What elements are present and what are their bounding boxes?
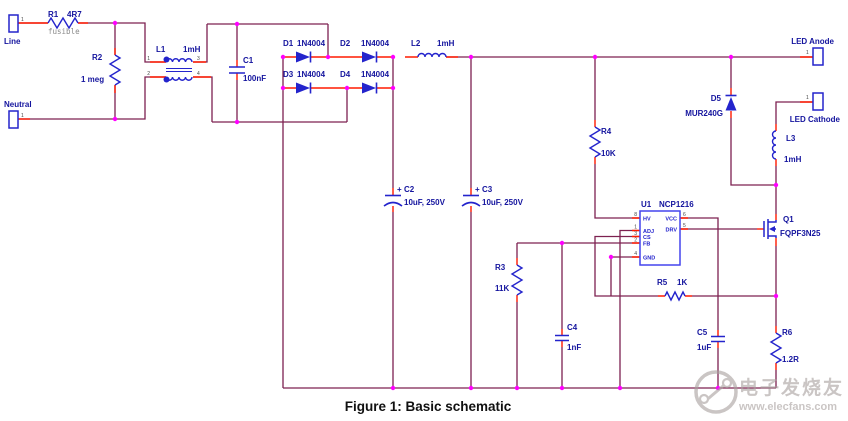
resistor-r2 [110, 55, 120, 85]
r1-ref: R1 [48, 10, 59, 19]
r4-ref: R4 [601, 127, 612, 136]
neutral-connector-box [9, 111, 18, 128]
phase-dot [164, 57, 170, 63]
resistor-r5 [665, 292, 685, 300]
r4-value: 10K [601, 149, 616, 158]
resistor-r3 [512, 265, 522, 295]
c2-polarity: + [397, 185, 402, 194]
l1-pin4-number: 4 [197, 71, 200, 77]
inductor-l3 [773, 131, 777, 159]
inductor-l1-transformer [164, 57, 193, 83]
u1-value: NCP1216 [659, 200, 694, 209]
capacitor-c4 [555, 336, 569, 341]
c3-ref: C3 [482, 185, 493, 194]
watermark-url: www.elecfans.com [738, 401, 837, 413]
l2-value: 1mH [437, 39, 455, 48]
r3-value: 11K [495, 284, 509, 293]
u1-pin-adj-number: 1 [634, 225, 637, 231]
u1-pin-drv-number: 5 [683, 223, 686, 229]
c1-ref: C1 [243, 56, 254, 65]
u1-pin-cs-number: 3 [634, 231, 637, 237]
d4-value: 1N4004 [361, 70, 390, 79]
led-cathode-label: LED Cathode [790, 115, 841, 124]
led-anode-connector-box [813, 48, 823, 65]
u1-pin-hv-number: 8 [634, 212, 637, 218]
led-cathode-pin-number: 1 [806, 95, 809, 101]
r1-value: 4R7 [67, 10, 82, 19]
resistor-r4 [590, 127, 600, 157]
q1-value: FQPF3N25 [780, 229, 821, 238]
c4-value: 1nF [567, 343, 581, 352]
c1-value: 100nF [243, 74, 266, 83]
u1-pin-cs: CS [643, 235, 651, 241]
inductor-l2 [418, 54, 446, 57]
r2-value: 1 meg [81, 75, 104, 84]
line-label: Line [4, 37, 21, 46]
r3-ref: R3 [495, 263, 506, 272]
q1-ref: Q1 [783, 215, 794, 224]
diode-d1 [296, 52, 311, 63]
c5-value: 1uF [697, 343, 711, 352]
d3-value: 1N4004 [297, 70, 326, 79]
u1-pin-gnd: GND [643, 256, 655, 262]
r6-value: 1.2R [782, 355, 799, 364]
l2-ref: L2 [411, 39, 421, 48]
watermark-text: 电子发烧友 [739, 376, 844, 399]
neutral-label: Neutral [4, 100, 32, 109]
l1-value: 1mH [183, 45, 201, 54]
c2-ref: C2 [404, 185, 415, 194]
c3-polarity: + [475, 185, 480, 194]
neutral-pin-number: 1 [21, 113, 24, 119]
r1-note: fusible [48, 27, 80, 36]
c4-ref: C4 [567, 323, 578, 332]
l3-ref: L3 [786, 134, 796, 143]
u1-pin-hv: HV [643, 217, 651, 223]
u1-ref: U1 [641, 200, 652, 209]
resistor-r6 [771, 333, 781, 363]
u1-pin-vcc: VCC [665, 217, 677, 223]
r6-ref: R6 [782, 328, 793, 337]
c5-ref: C5 [697, 328, 708, 337]
l3-value: 1mH [784, 155, 802, 164]
component-leads [18, 23, 813, 370]
mosfet-q1 [764, 219, 776, 239]
diode-d5 [726, 96, 737, 111]
capacitor-c3 [462, 196, 480, 207]
led-cathode-connector-box [813, 93, 823, 110]
l1-ref: L1 [156, 45, 166, 54]
capacitor-c5 [711, 337, 725, 342]
capacitor-c1 [229, 67, 245, 73]
diode-d3 [296, 83, 311, 94]
u1-pin-fb: FB [643, 242, 650, 248]
d5-ref: D5 [711, 94, 722, 103]
d2-ref: D2 [340, 39, 351, 48]
line-pin-number: 1 [21, 17, 24, 23]
schematic-drawing: R1 4R7 fusible Line Neutral R2 1 meg L1 … [0, 0, 848, 421]
d4-ref: D4 [340, 70, 351, 79]
d5-value: MUR240G [685, 109, 723, 118]
u1-pin-fb-number: 2 [634, 238, 637, 244]
l1-pin3-number: 3 [197, 56, 200, 62]
l1-pin2-number: 2 [147, 71, 150, 77]
r5-value: 1K [677, 278, 687, 287]
u1-pin-drv: DRV [665, 228, 677, 234]
diode-d4 [362, 83, 377, 94]
led-anode-pin-number: 1 [806, 50, 809, 56]
figure-caption: Figure 1: Basic schematic [345, 399, 512, 414]
d3-ref: D3 [283, 70, 294, 79]
r2-ref: R2 [92, 53, 103, 62]
u1-pin-vcc-number: 6 [683, 212, 686, 218]
l1-pin1-number: 1 [147, 56, 150, 62]
schematic-canvas: R1 4R7 fusible Line Neutral R2 1 meg L1 … [0, 0, 848, 421]
d1-ref: D1 [283, 39, 294, 48]
phase-dot [164, 77, 170, 83]
d1-value: 1N4004 [297, 39, 326, 48]
c3-value: 10uF, 250V [482, 198, 524, 207]
r5-ref: R5 [657, 278, 668, 287]
c2-value: 10uF, 250V [404, 198, 446, 207]
capacitor-c2 [384, 196, 402, 207]
d2-value: 1N4004 [361, 39, 390, 48]
diode-d2 [362, 52, 377, 63]
line-connector-box [9, 15, 18, 32]
led-anode-label: LED Anode [791, 37, 834, 46]
u1-pin-gnd-number: 4 [634, 251, 637, 257]
